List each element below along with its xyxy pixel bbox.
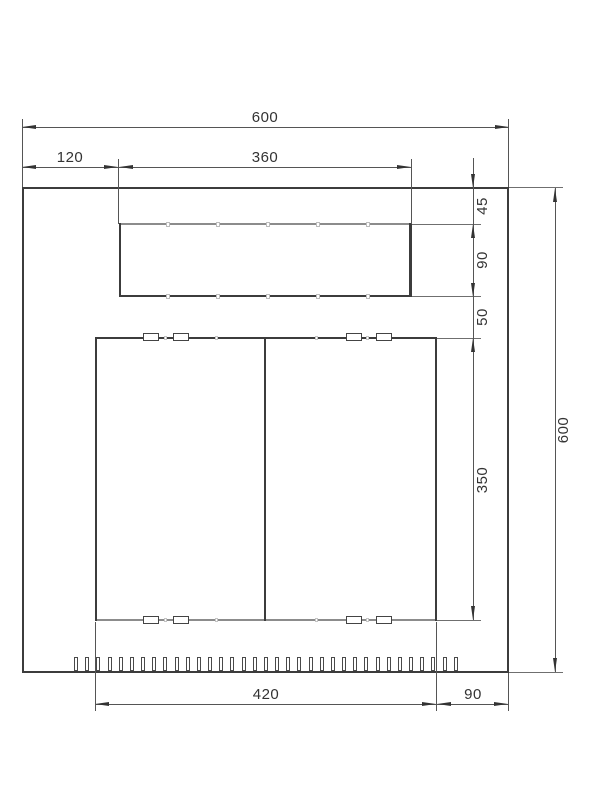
vent-slot	[376, 657, 380, 671]
dim-overall-height-label: 600	[556, 408, 572, 452]
vent-slot	[242, 657, 246, 671]
vent-slot	[186, 657, 190, 671]
weld-tick	[216, 294, 220, 299]
technical-drawing-sheet: 600 120 360 45 90 50 350 600 420 90	[0, 0, 600, 800]
outer-panel-top-edge	[22, 187, 509, 189]
cutout-left-edge	[119, 223, 121, 297]
vent-slot	[398, 657, 402, 671]
dim-cutout-width-label: 360	[195, 150, 335, 166]
ext-line	[411, 159, 412, 224]
weld-tick	[164, 336, 167, 340]
vent-slot	[152, 657, 156, 671]
vent-slot	[275, 657, 279, 671]
ext-line	[508, 119, 509, 187]
vent-slot	[286, 657, 290, 671]
arrowhead	[22, 125, 36, 129]
dim-gap-label: 50	[475, 295, 491, 339]
weld-tick	[366, 618, 369, 622]
door-divider-edge	[264, 337, 266, 621]
outer-panel-left-edge	[22, 187, 24, 673]
door-left-edge	[95, 337, 97, 621]
door-clip	[143, 333, 159, 341]
vent-slot	[141, 657, 145, 671]
vent-slot	[219, 657, 223, 671]
vent-slot	[387, 657, 391, 671]
vent-slot	[264, 657, 268, 671]
weld-tick	[166, 294, 170, 299]
weld-tick	[366, 336, 369, 340]
weld-tick	[215, 618, 218, 622]
vent-slot	[74, 657, 78, 671]
dim-cutout-height-label: 90	[475, 238, 491, 282]
weld-tick	[315, 618, 318, 622]
vent-slot	[208, 657, 212, 671]
vent-slot	[431, 657, 435, 671]
vent-slot	[309, 657, 313, 671]
vent-slot	[130, 657, 134, 671]
weld-tick	[316, 294, 320, 299]
dim-doors-height-label: 350	[475, 458, 491, 502]
arrowhead	[553, 658, 557, 672]
door-clip	[376, 616, 392, 624]
ext-line	[437, 620, 481, 621]
weld-tick	[315, 336, 318, 340]
vent-slot	[331, 657, 335, 671]
dim-cutout-left-offset-label: 120	[0, 150, 140, 166]
vent-slot	[253, 657, 257, 671]
door-right-edge	[435, 337, 437, 621]
vent-slot	[454, 657, 458, 671]
door-clip	[376, 333, 392, 341]
weld-tick	[266, 294, 270, 299]
vent-slot	[85, 657, 89, 671]
door-clip	[173, 616, 189, 624]
dim-right-margin-label: 90	[403, 687, 543, 703]
weld-tick	[164, 618, 167, 622]
vent-slot	[297, 657, 301, 671]
weld-tick	[366, 294, 370, 299]
outer-panel-right-edge	[507, 187, 509, 673]
vent-slot	[353, 657, 357, 671]
vent-slot	[197, 657, 201, 671]
vent-slot	[420, 657, 424, 671]
vent-slot	[119, 657, 123, 671]
vent-slot	[96, 657, 100, 671]
vent-slot	[342, 657, 346, 671]
vent-slot	[163, 657, 167, 671]
arrowhead	[495, 125, 509, 129]
arrowhead	[95, 702, 109, 706]
door-clip	[346, 333, 362, 341]
vent-slot	[320, 657, 324, 671]
weld-tick	[266, 222, 270, 227]
ext-line	[509, 672, 563, 673]
ext-line	[118, 159, 119, 224]
vent-slot	[108, 657, 112, 671]
dim-doors-width-label: 420	[196, 687, 336, 703]
dim-line-overall-width	[22, 127, 509, 128]
weld-tick	[166, 222, 170, 227]
weld-tick	[216, 222, 220, 227]
dim-overall-width-label: 600	[195, 110, 335, 126]
dim-cutout-top-offset-label: 45	[475, 184, 491, 228]
weld-tick	[366, 222, 370, 227]
door-clip	[346, 616, 362, 624]
door-clip	[173, 333, 189, 341]
weld-tick	[215, 336, 218, 340]
cutout-right-edge	[409, 223, 412, 297]
weld-tick	[316, 222, 320, 227]
vent-slot	[364, 657, 368, 671]
arrowhead	[471, 606, 475, 620]
ext-line	[95, 622, 96, 711]
dim-line-cutout-offsets	[22, 167, 412, 168]
arrowhead	[553, 188, 557, 202]
vent-slot	[175, 657, 179, 671]
arrowhead	[397, 165, 411, 169]
arrowhead	[471, 338, 475, 352]
vent-slot	[230, 657, 234, 671]
vent-slot	[443, 657, 447, 671]
vent-slot	[409, 657, 413, 671]
perforation-row	[74, 657, 464, 672]
door-clip	[143, 616, 159, 624]
